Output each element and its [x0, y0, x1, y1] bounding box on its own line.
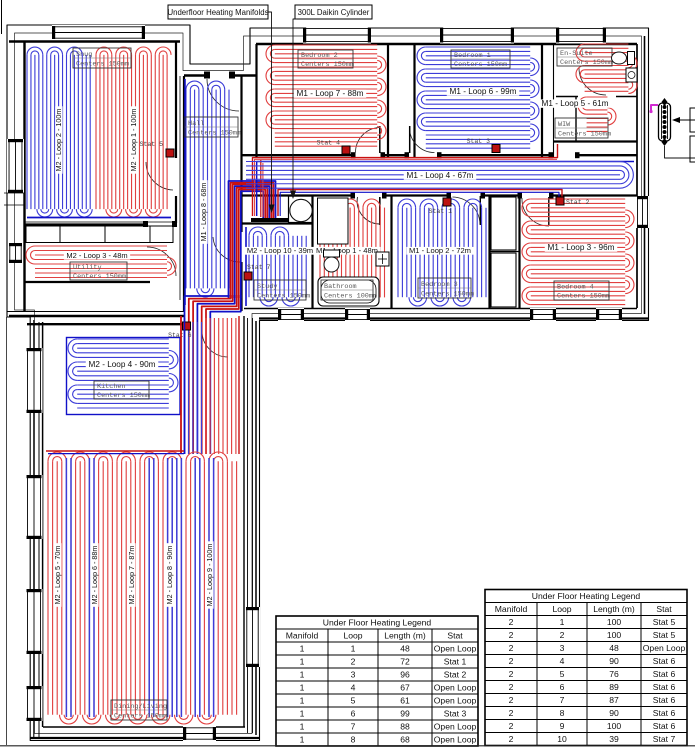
svg-text:2: 2 [509, 721, 514, 731]
svg-text:Manifold: Manifold [495, 604, 528, 614]
svg-text:Under Floor Heating Legend: Under Floor Heating Legend [323, 618, 432, 628]
svg-text:Stat 6: Stat 6 [653, 721, 676, 731]
svg-text:68: 68 [400, 735, 410, 745]
svg-text:Stat 1: Stat 1 [444, 657, 467, 667]
svg-text:Open Loop: Open Loop [434, 735, 477, 745]
svg-text:2: 2 [560, 630, 565, 640]
svg-text:2: 2 [509, 695, 514, 705]
svg-text:M2 - Loop 3 - 48m: M2 - Loop 3 - 48m [66, 251, 127, 260]
svg-text:2: 2 [509, 643, 514, 653]
svg-text:Underfloor Heating Manifolds: Underfloor Heating Manifolds [168, 8, 269, 17]
svg-text:Centers 150mm: Centers 150mm [558, 131, 611, 139]
svg-text:9: 9 [560, 721, 565, 731]
svg-text:Under Floor Heating Legend: Under Floor Heating Legend [532, 591, 641, 601]
svg-text:3: 3 [560, 643, 565, 653]
svg-text:Manifold: Manifold [286, 631, 319, 641]
svg-text:89: 89 [609, 682, 619, 692]
svg-text:2: 2 [509, 682, 514, 692]
svg-text:3: 3 [351, 670, 356, 680]
svg-text:1: 1 [300, 657, 305, 667]
svg-text:Centers 150mm: Centers 150mm [454, 61, 507, 69]
svg-text:Stat 3: Stat 3 [444, 709, 467, 719]
svg-text:61: 61 [400, 696, 410, 706]
svg-text:Loop: Loop [343, 631, 362, 641]
svg-text:1: 1 [300, 735, 305, 745]
svg-text:1: 1 [300, 683, 305, 693]
svg-text:87: 87 [609, 695, 619, 705]
svg-text:Loop: Loop [552, 604, 571, 614]
svg-text:67: 67 [400, 683, 410, 693]
svg-text:Stat 6: Stat 6 [168, 332, 192, 339]
svg-text:M2 - Loop 1 - 100m: M2 - Loop 1 - 100m [129, 109, 138, 172]
svg-text:72: 72 [400, 657, 410, 667]
svg-text:Stat 7: Stat 7 [247, 264, 271, 271]
svg-text:Centers 150mm: Centers 150mm [114, 713, 167, 721]
svg-text:Stat 6: Stat 6 [653, 708, 676, 718]
svg-text:2: 2 [509, 734, 514, 744]
svg-text:Open Loop: Open Loop [434, 644, 477, 654]
svg-text:M2 - Loop 7 - 87m: M2 - Loop 7 - 87m [127, 546, 136, 605]
svg-text:M2 - Loop 2 - 100m: M2 - Loop 2 - 100m [54, 109, 63, 172]
svg-text:90: 90 [609, 708, 619, 718]
svg-text:48: 48 [400, 644, 410, 654]
svg-text:5: 5 [351, 696, 356, 706]
svg-text:Open Loop: Open Loop [643, 643, 686, 653]
svg-text:6: 6 [351, 709, 356, 719]
svg-text:8: 8 [560, 708, 565, 718]
svg-text:Centers 150mm: Centers 150mm [73, 273, 126, 281]
svg-text:M1 - Loop 5 - 61m: M1 - Loop 5 - 61m [542, 99, 609, 108]
svg-text:1: 1 [300, 670, 305, 680]
svg-text:M1 - Loop 6 - 99m: M1 - Loop 6 - 99m [450, 87, 517, 96]
svg-text:2: 2 [509, 630, 514, 640]
svg-text:M2 - Loop 9 - 100m: M2 - Loop 9 - 100m [205, 544, 214, 607]
svg-text:Centers 100mm: Centers 100mm [324, 293, 377, 301]
svg-text:Stat 6: Stat 6 [653, 669, 676, 679]
svg-text:Stat: Stat [656, 604, 672, 614]
svg-text:1: 1 [351, 644, 356, 654]
svg-text:M2 - Loop 8 - 90m: M2 - Loop 8 - 90m [165, 546, 174, 605]
svg-text:Centers 150mm: Centers 150mm [421, 291, 474, 299]
svg-text:1: 1 [300, 644, 305, 654]
svg-text:Open Loop: Open Loop [434, 696, 477, 706]
svg-text:M2 - Loop 10 - 39m: M2 - Loop 10 - 39m [247, 246, 313, 255]
svg-text:8: 8 [351, 735, 356, 745]
svg-text:76: 76 [609, 669, 619, 679]
svg-text:88: 88 [400, 722, 410, 732]
svg-text:M2 - Loop 5 - 70m: M2 - Loop 5 - 70m [53, 546, 62, 605]
svg-text:Stat 2: Stat 2 [444, 670, 467, 680]
svg-text:Centers 150mm: Centers 150mm [257, 293, 310, 301]
svg-text:M1 - Loop 7 - 88m: M1 - Loop 7 - 88m [297, 89, 364, 98]
svg-text:M1 - Loop 2 - 72m: M1 - Loop 2 - 72m [409, 246, 471, 255]
svg-text:7: 7 [560, 695, 565, 705]
svg-text:M1 - Loop 4 - 67m: M1 - Loop 4 - 67m [407, 171, 474, 180]
svg-text:5: 5 [560, 669, 565, 679]
svg-text:100: 100 [607, 721, 622, 731]
svg-text:48: 48 [609, 643, 619, 653]
svg-text:Stat 7: Stat 7 [653, 734, 676, 744]
svg-text:Stat 4: Stat 4 [317, 140, 341, 147]
svg-text:7: 7 [351, 722, 356, 732]
svg-text:Open Loop: Open Loop [434, 683, 477, 693]
svg-text:Length (m): Length (m) [384, 631, 426, 641]
svg-text:300L Daikin Cylinder: 300L Daikin Cylinder [298, 8, 370, 17]
svg-text:Stat 6: Stat 6 [653, 682, 676, 692]
svg-text:90: 90 [609, 656, 619, 666]
svg-text:2: 2 [509, 617, 514, 627]
svg-text:1: 1 [300, 722, 305, 732]
svg-text:Stat 1: Stat 1 [429, 208, 453, 215]
svg-text:Centers 150mm: Centers 150mm [188, 130, 241, 138]
svg-text:10: 10 [557, 734, 567, 744]
svg-text:1: 1 [560, 617, 565, 627]
svg-text:2: 2 [509, 656, 514, 666]
svg-text:6: 6 [560, 682, 565, 692]
svg-text:Centers 150mm: Centers 150mm [97, 392, 150, 400]
svg-text:M2 - Loop 4 - 90m: M2 - Loop 4 - 90m [89, 360, 156, 369]
svg-text:100: 100 [607, 630, 622, 640]
svg-text:Stat: Stat [447, 631, 463, 641]
svg-text:Centers 150mm: Centers 150mm [557, 293, 610, 301]
svg-text:M1 - Loop 3 - 96m: M1 - Loop 3 - 96m [548, 243, 615, 252]
svg-text:39: 39 [609, 734, 619, 744]
svg-text:Stat 2: Stat 2 [566, 199, 590, 206]
svg-text:Stat 6: Stat 6 [653, 695, 676, 705]
svg-text:99: 99 [400, 709, 410, 719]
svg-text:Centers 150mm: Centers 150mm [560, 59, 613, 67]
svg-text:1: 1 [300, 696, 305, 706]
svg-text:M1 - Loop 8 - 68m: M1 - Loop 8 - 68m [199, 183, 208, 242]
svg-text:Centers 150mm: Centers 150mm [301, 61, 354, 69]
svg-text:2: 2 [509, 669, 514, 679]
svg-text:Centers 150mm: Centers 150mm [76, 61, 129, 69]
svg-text:100: 100 [607, 617, 622, 627]
svg-text:Stat 5: Stat 5 [140, 141, 164, 148]
svg-text:M2 - Loop 6 - 88m: M2 - Loop 6 - 88m [90, 546, 99, 605]
svg-text:96: 96 [400, 670, 410, 680]
svg-text:Stat 3: Stat 3 [467, 138, 491, 145]
svg-text:4: 4 [351, 683, 356, 693]
svg-text:Stat 5: Stat 5 [653, 617, 676, 627]
svg-text:Stat 5: Stat 5 [653, 630, 676, 640]
svg-text:1: 1 [300, 709, 305, 719]
svg-text:2: 2 [351, 657, 356, 667]
svg-text:4: 4 [560, 656, 565, 666]
svg-text:Length (m): Length (m) [593, 604, 635, 614]
svg-text:2: 2 [509, 708, 514, 718]
svg-text:Stat 6: Stat 6 [653, 656, 676, 666]
svg-text:Open Loop: Open Loop [434, 722, 477, 732]
